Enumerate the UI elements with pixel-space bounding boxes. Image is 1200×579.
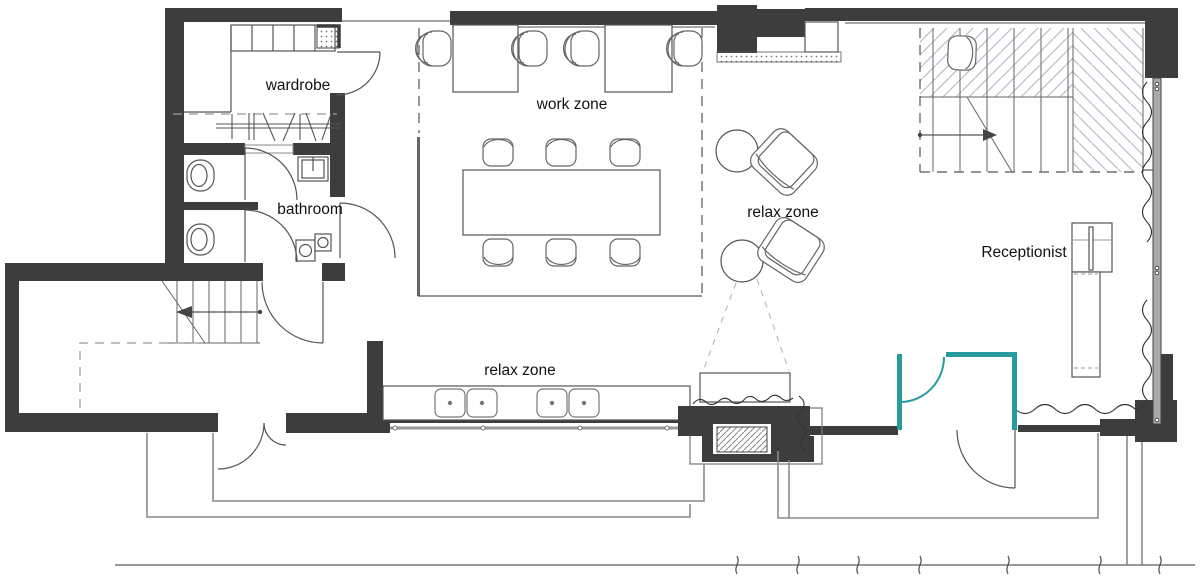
label-bathroom: bathroom (277, 201, 342, 218)
label-receptionist: Receptionist (981, 244, 1067, 261)
toilet (187, 224, 214, 255)
desk (453, 25, 518, 92)
glazed-wall (1143, 78, 1161, 424)
relax-zone-bench (383, 386, 690, 430)
relax-zone-lounge (703, 125, 828, 371)
entry-vestibule (897, 352, 1017, 488)
conference-table (463, 170, 660, 235)
hanging-rail (216, 113, 341, 141)
label-relax-zone-lounge: relax zone (747, 204, 819, 221)
fireplace-unit (678, 373, 822, 464)
bathroom-door (340, 203, 395, 258)
wardrobe-door (337, 52, 380, 95)
stair-arrow (918, 129, 997, 141)
floor-plan: wardrobe bathroom work zone relax zone r… (0, 0, 1200, 579)
reception-desk (1072, 223, 1112, 377)
stair-chair (947, 36, 976, 71)
toilet (187, 160, 214, 191)
terrace-lines (147, 433, 1142, 565)
label-wardrobe: wardrobe (265, 77, 331, 94)
armchair (754, 214, 828, 286)
entrance-door (957, 430, 1015, 488)
work-zone (416, 25, 702, 300)
stairs-main (918, 28, 1143, 172)
exit-double-door (218, 423, 286, 469)
flue-hatch (717, 427, 767, 452)
insulated-column (317, 26, 339, 48)
label-work-zone: work zone (536, 96, 608, 113)
armchair (746, 125, 821, 200)
annex-door (262, 282, 323, 343)
annex-stair-room (80, 281, 323, 408)
label-relax-zone-bench: relax zone (484, 362, 556, 379)
stair-arrow (176, 306, 262, 318)
tv-shelf (700, 373, 790, 402)
section-line (115, 556, 1195, 574)
side-table (721, 240, 763, 282)
sink-unit (296, 234, 331, 261)
desk (605, 25, 672, 92)
headroom-dashed-line (80, 343, 198, 408)
washbasin (298, 157, 328, 181)
floor-plan-canvas: wardrobe bathroom work zone relax zone r… (0, 0, 1200, 579)
view-cone-line (757, 279, 789, 371)
view-cone-line (703, 283, 736, 371)
